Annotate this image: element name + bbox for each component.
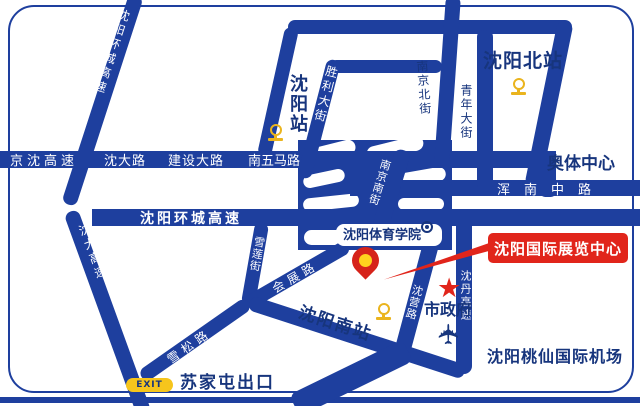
railway-station-icon: [511, 78, 527, 96]
road-label-ring-expwy: 沈阳环城高速: [140, 212, 242, 226]
college-badge-icon: [421, 221, 433, 233]
road-top-horizontal: [288, 20, 572, 34]
landmark-sujiatun-exit-label: 苏家屯出口: [180, 375, 275, 392]
station-central-label: 沈阳站: [288, 74, 306, 140]
road-label-nanwuma-rd: 南五马路: [248, 155, 300, 168]
station-north-label: 沈阳北站: [483, 52, 563, 71]
location-pin-icon: [351, 246, 381, 288]
exhibition-center-banner: 沈阳国际展览中心: [488, 233, 628, 263]
shenyang-road-map: 京沈高速 沈大路 建设大路 南五马路 沈阳环城高速 沈阳环城高速 沈大高速 胜利…: [0, 0, 640, 406]
railway-station-icon: [268, 124, 284, 142]
road-label-qingnian-st: 青年大街: [460, 84, 472, 188]
road-label-hunnan-rd: 浑南中路: [497, 184, 605, 197]
landmark-city-hall-label: 市政府: [424, 302, 472, 318]
airplane-icon: ✈: [436, 322, 464, 345]
landmark-sport-institute-label: 沈阳体育学院: [343, 229, 421, 242]
city-hall-star-icon: ★: [437, 275, 461, 302]
railway-station-icon: [376, 303, 392, 321]
landmark-airport-label: 沈阳桃仙国际机场: [487, 349, 623, 365]
landmark-olympic-label: 奥体中心: [547, 156, 615, 173]
exit-sign: EXIT: [126, 378, 173, 392]
road-label-shenda-rd: 沈大路: [104, 155, 146, 168]
road-label-jianshe-rd: 建设大路: [168, 155, 224, 168]
road-label-jingshen-expwy: 京沈高速: [10, 155, 78, 168]
